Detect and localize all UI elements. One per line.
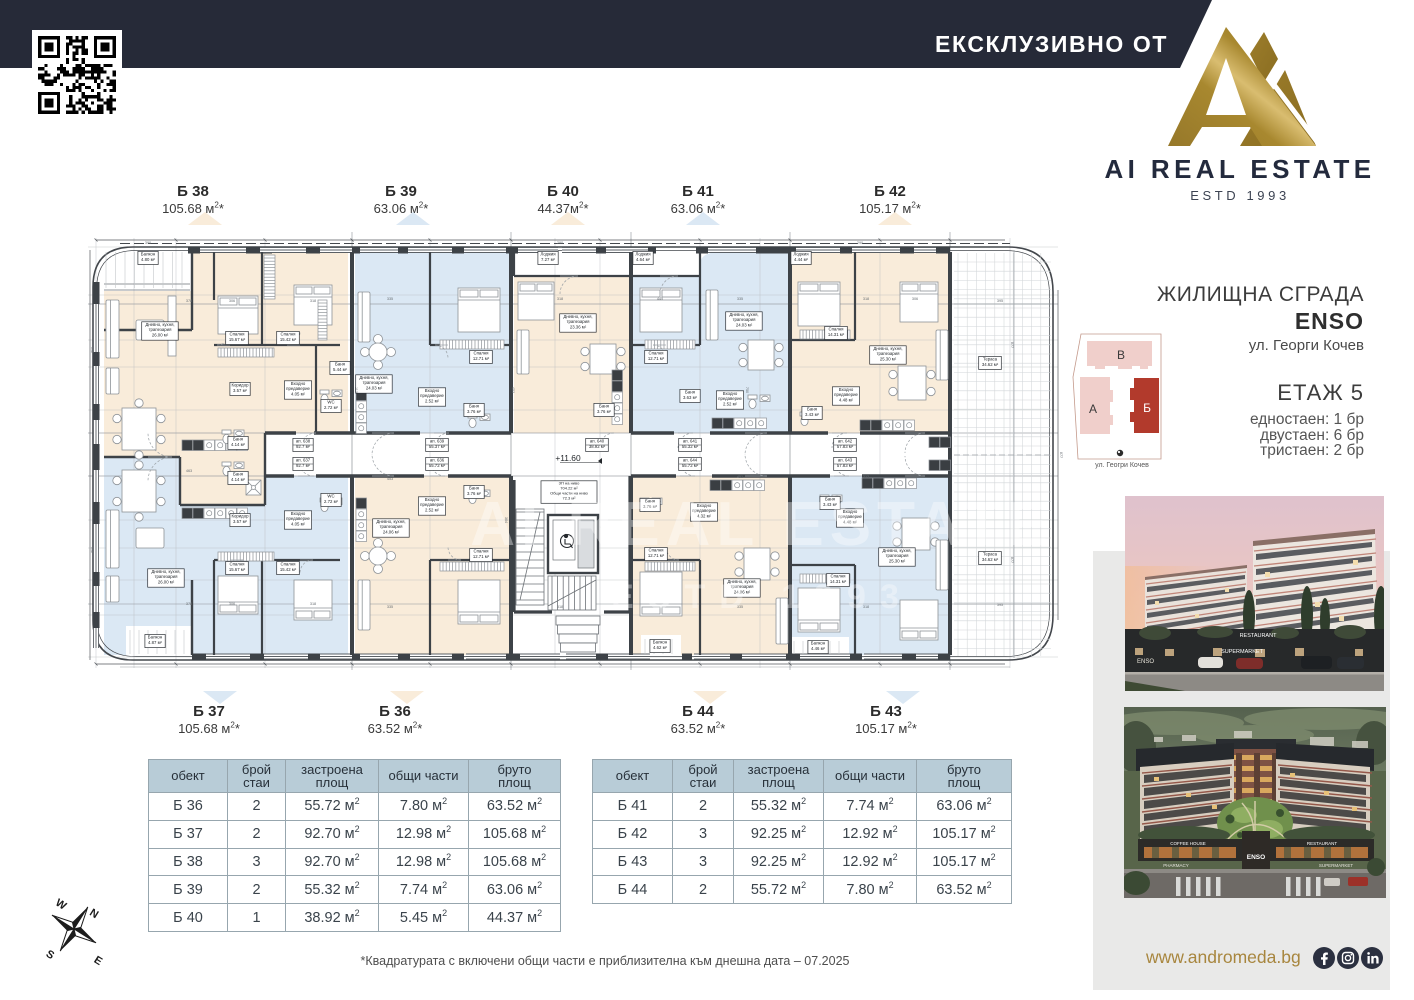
svg-text:SUPERMARKET: SUPERMARKET: [1221, 649, 1264, 655]
svg-text:ап. 641: ап. 641: [683, 439, 698, 444]
svg-text:4.64 м²: 4.64 м²: [636, 257, 651, 262]
svg-text:192: 192: [90, 547, 94, 553]
svg-text:318: 318: [310, 602, 316, 606]
svg-text:Входно: Входно: [425, 497, 440, 502]
svg-text:15.67 м²: 15.67 м²: [229, 337, 246, 342]
svg-text:Входно: Входно: [425, 388, 440, 393]
svg-text:3.63 м²: 3.63 м²: [683, 395, 698, 400]
svg-text:25.30 м²: 25.30 м²: [880, 357, 897, 362]
svg-text:Спалня: Спалня: [229, 562, 245, 567]
svg-text:Баня: Баня: [233, 437, 244, 442]
svg-text:390: 390: [145, 241, 151, 245]
svg-text:ап. 637: ап. 637: [296, 458, 311, 463]
svg-text:12.71 м²: 12.71 м²: [473, 356, 490, 361]
svg-text:RESTAURANT: RESTAURANT: [1307, 841, 1337, 846]
svg-text:ENSO: ENSO: [1137, 659, 1154, 665]
svg-text:23.36 м²: 23.36 м²: [570, 325, 587, 330]
svg-text:15.67 м²: 15.67 м²: [229, 567, 246, 572]
svg-text:AI REAL ESTATE: AI REAL ESTATE: [1104, 154, 1375, 184]
svg-text:Лоджия: Лоджия: [635, 252, 651, 257]
svg-text:Баня: Баня: [599, 404, 610, 409]
svg-text:Спалня: Спалня: [648, 351, 664, 356]
svg-text:395: 395: [997, 603, 1003, 607]
svg-text:15.42 м²: 15.42 м²: [280, 337, 297, 342]
svg-text:57.83 м²: 57.83 м²: [837, 444, 854, 449]
svg-text:26.00 м²: 26.00 м²: [158, 580, 175, 585]
svg-text:877: 877: [1010, 342, 1014, 348]
svg-text:+11.60: +11.60: [555, 453, 581, 463]
svg-text:WC: WC: [327, 494, 334, 499]
svg-text:ESTD 1993: ESTD 1993: [611, 578, 913, 616]
svg-text:2.72 м²: 2.72 м²: [324, 499, 339, 504]
svg-text:Баня: Баня: [335, 362, 346, 367]
svg-text:Баня: Баня: [807, 407, 818, 412]
svg-text:трапезария: трапезария: [733, 317, 757, 322]
svg-text:4.14 м²: 4.14 м²: [231, 442, 246, 447]
svg-text:306: 306: [229, 602, 235, 606]
svg-text:Лоджия: Лоджия: [793, 252, 809, 257]
svg-text:PHARMACY: PHARMACY: [1163, 863, 1189, 868]
svg-text:Спалня: Спалня: [280, 562, 296, 567]
svg-text:2.52 м²: 2.52 м²: [425, 508, 440, 513]
svg-text:трапезария: трапезария: [567, 319, 591, 324]
svg-text:318: 318: [310, 299, 316, 303]
svg-text:306: 306: [912, 297, 918, 301]
svg-text:Спалня: Спалня: [280, 332, 296, 337]
svg-text:SUPERMARKET: SUPERMARKET: [1319, 863, 1354, 868]
svg-text:12.71 м²: 12.71 м²: [648, 356, 665, 361]
svg-text:113: 113: [354, 387, 358, 393]
svg-text:предаверие: предаверие: [834, 392, 858, 397]
svg-text:3.57 м²: 3.57 м²: [233, 388, 248, 393]
svg-text:4.80 м²: 4.80 м²: [141, 257, 156, 262]
svg-text:Коридор: Коридор: [232, 383, 250, 388]
svg-text:AI REAL ESTATE: AI REAL ESTATE: [470, 490, 1053, 559]
svg-text:Дневно, кухня,: Дневно, кухня,: [729, 312, 758, 317]
svg-text:Спалня: Спалня: [473, 351, 489, 356]
svg-text:ул. Геогри Кочев: ул. Геогри Кочев: [1095, 462, 1149, 469]
svg-text:Дневно, кухня,: Дневно, кухня,: [873, 346, 902, 351]
svg-text:ап. 642: ап. 642: [838, 439, 853, 444]
svg-text:4.05 м²: 4.05 м²: [291, 392, 306, 397]
svg-text:26.00 м²: 26.00 м²: [152, 333, 169, 338]
svg-text:55.37 м²: 55.37 м²: [429, 444, 446, 449]
svg-text:S: S: [44, 948, 57, 962]
svg-text:55.32 м²: 55.32 м²: [682, 444, 699, 449]
svg-text:92.7 м²: 92.7 м²: [296, 463, 311, 468]
svg-text:предаверие: предаверие: [420, 502, 444, 507]
svg-text:ESTD 1993: ESTD 1993: [1190, 188, 1290, 203]
svg-text:877: 877: [1059, 452, 1063, 458]
svg-text:WC: WC: [327, 400, 334, 405]
svg-text:453: 453: [387, 477, 393, 481]
svg-text:Входно: Входно: [291, 511, 306, 516]
svg-text:Балкон: Балкон: [811, 641, 826, 646]
svg-text:Дневно, кухня,: Дневно, кухня,: [145, 322, 174, 327]
svg-text:Дневно, кухня,: Дневно, кухня,: [359, 375, 388, 380]
svg-text:2.52 м²: 2.52 м²: [723, 402, 738, 407]
svg-text:Баня: Баня: [469, 404, 480, 409]
svg-text:трапезария: трапезария: [363, 380, 387, 385]
svg-text:3.76 м²: 3.76 м²: [467, 409, 482, 414]
svg-text:57.83 м²: 57.83 м²: [837, 463, 854, 468]
svg-text:318: 318: [557, 605, 563, 609]
svg-text:2.52 м²: 2.52 м²: [425, 399, 440, 404]
svg-text:ап. 643: ап. 643: [838, 458, 853, 463]
svg-text:4.87 м²: 4.87 м²: [148, 640, 163, 645]
svg-text:ап. 636: ап. 636: [430, 458, 445, 463]
svg-text:Баня: Баня: [685, 390, 696, 395]
svg-text:COFFEE HOUSE: COFFEE HOUSE: [1170, 841, 1206, 846]
svg-text:2.72 м²: 2.72 м²: [324, 405, 339, 410]
svg-text:4.05 м²: 4.05 м²: [291, 522, 306, 527]
svg-text:Входно: Входно: [839, 387, 854, 392]
svg-text:3.57 м²: 3.57 м²: [233, 519, 248, 524]
svg-text:Дневно, кухня,: Дневно, кухня,: [151, 569, 180, 574]
svg-text:192: 192: [90, 347, 94, 353]
svg-text:N: N: [87, 907, 100, 921]
svg-text:24.06 м²: 24.06 м²: [383, 530, 400, 535]
svg-text:ENSO: ENSO: [1247, 854, 1265, 861]
svg-text:55.72 м²: 55.72 м²: [682, 463, 699, 468]
svg-text:ап. 639: ап. 639: [430, 439, 445, 444]
svg-text:3.43 м²: 3.43 м²: [805, 412, 820, 417]
svg-text:55.72 м²: 55.72 м²: [429, 463, 446, 468]
svg-text:предаверие: предаверие: [286, 516, 310, 521]
svg-text:Тераса: Тераса: [983, 357, 998, 362]
svg-text:ап. 644: ап. 644: [683, 458, 698, 463]
svg-text:Спалня: Спалня: [828, 327, 844, 332]
svg-text:Входно: Входно: [291, 381, 306, 386]
svg-text:трапезария: трапезария: [149, 327, 173, 332]
svg-text:Входно: Входно: [723, 391, 738, 396]
svg-text:Коридор: Коридор: [232, 514, 250, 519]
svg-text:378: 378: [186, 299, 192, 303]
svg-text:Балкон: Балкон: [148, 635, 163, 640]
svg-text:25.30 м²: 25.30 м²: [889, 559, 906, 564]
svg-text:E: E: [92, 954, 105, 968]
svg-text:предаверие: предаверие: [420, 393, 444, 398]
svg-text:318: 318: [863, 297, 869, 301]
svg-text:ап. 638: ап. 638: [296, 439, 311, 444]
svg-text:4.44 м²: 4.44 м²: [794, 257, 809, 262]
svg-text:4.14 м²: 4.14 м²: [231, 477, 246, 482]
svg-text:451: 451: [737, 475, 743, 479]
svg-text:38.92 м²: 38.92 м²: [589, 444, 606, 449]
svg-text:4.62 м²: 4.62 м²: [653, 645, 668, 650]
svg-text:Дневно, кухня,: Дневно, кухня,: [563, 314, 592, 319]
svg-text:5.44 м²: 5.44 м²: [333, 367, 348, 372]
svg-text:4.48 м²: 4.48 м²: [839, 398, 854, 403]
svg-text:92.7 м²: 92.7 м²: [296, 444, 311, 449]
svg-text:463: 463: [186, 469, 192, 473]
svg-text:318: 318: [557, 297, 563, 301]
svg-text:290: 290: [857, 241, 863, 245]
svg-text:трапезария: трапезария: [155, 574, 179, 579]
svg-text:306: 306: [229, 299, 235, 303]
svg-text:ап. 640: ап. 640: [590, 439, 605, 444]
svg-text:335: 335: [387, 605, 393, 609]
svg-text:453: 453: [511, 387, 515, 393]
svg-text:RESTAURANT: RESTAURANT: [1240, 633, 1278, 639]
svg-text:395: 395: [997, 299, 1003, 303]
svg-text:W: W: [53, 897, 69, 913]
svg-text:750: 750: [745, 387, 749, 393]
svg-text:24.03 м²: 24.03 м²: [366, 386, 383, 391]
svg-text:7.27 м²: 7.27 м²: [541, 257, 556, 262]
svg-text:24.03 м²: 24.03 м²: [736, 323, 753, 328]
svg-text:445: 445: [657, 297, 663, 301]
svg-text:Балкон: Балкон: [141, 252, 156, 257]
svg-text:предаверие: предаверие: [718, 396, 742, 401]
svg-text:3.76 м²: 3.76 м²: [597, 409, 612, 414]
svg-text:14.31 м²: 14.31 м²: [828, 332, 845, 337]
svg-text:290: 290: [557, 241, 563, 245]
svg-text:В: В: [1117, 348, 1125, 362]
svg-text:212: 212: [863, 475, 869, 479]
svg-text:335: 335: [387, 297, 393, 301]
svg-text:Дневно, кухня,: Дневно, кухня,: [376, 519, 405, 524]
svg-text:4.46 м²: 4.46 м²: [811, 646, 826, 651]
svg-text:15.42 м²: 15.42 м²: [280, 567, 297, 572]
svg-text:Спалня: Спалня: [229, 332, 245, 337]
svg-text:34.62 м²: 34.62 м²: [982, 362, 999, 367]
svg-text:предаверие: предаверие: [286, 386, 310, 391]
svg-text:335: 335: [737, 297, 743, 301]
svg-text:378: 378: [186, 602, 192, 606]
svg-text:трапезария: трапезария: [380, 524, 404, 529]
svg-text:Лоджия: Лоджия: [540, 252, 556, 257]
svg-text:трапезария: трапезария: [877, 351, 901, 356]
svg-text:Баня: Баня: [233, 472, 244, 477]
svg-text:Балкон: Балкон: [653, 640, 668, 645]
